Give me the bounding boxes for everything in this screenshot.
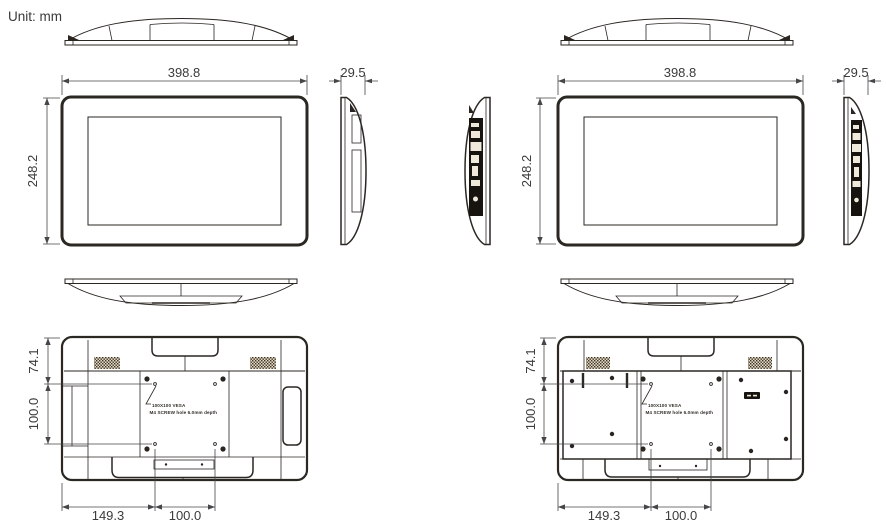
depth-value: 29.5 [843, 65, 868, 80]
width-value: 398.8 [664, 65, 697, 80]
vesa-left-offset-value: 149.3 [588, 508, 621, 523]
speaker-grille [748, 357, 772, 369]
stand-cutout [648, 338, 714, 356]
bottom-view [65, 279, 297, 306]
vesa-top-offset-value: 74.1 [26, 348, 41, 373]
io-side-view-left [465, 98, 490, 245]
width-value: 398.8 [168, 65, 201, 80]
speaker-grille [94, 357, 120, 369]
vesa-vertical-spacing-value: 100.0 [26, 398, 41, 431]
depth-dimension: 29.5 [329, 65, 378, 95]
bottom-recess [605, 459, 750, 477]
depth-dimension: 29.5 [832, 65, 881, 95]
rear-left-dimensions: 74.1 100.0 [26, 338, 152, 444]
vesa-left-offset-value: 149.3 [92, 508, 125, 523]
front-view [558, 97, 803, 245]
vesa-leader-line [146, 386, 156, 404]
variant-b: 398.8 248.2 [465, 19, 881, 524]
variant-a: 398.8 248.2 29.5 [25, 19, 378, 524]
vesa-note-line2: M4 SCREW hole 6.0mm depth [150, 410, 218, 415]
speaker-grille [250, 357, 276, 369]
vesa-leader-line [642, 386, 652, 404]
height-dimension: 248.2 [25, 98, 60, 244]
vesa-top-offset-value: 74.1 [523, 348, 538, 373]
dimension-drawing: Unit: mm 398.8 248.2 [0, 0, 886, 531]
depth-value: 29.5 [340, 65, 365, 80]
rear-connector-slot [744, 392, 760, 399]
top-view [65, 19, 297, 46]
side-recess [283, 387, 301, 445]
vesa-horizontal-spacing-value: 100.0 [169, 508, 202, 523]
front-view [62, 97, 307, 245]
vesa-vertical-spacing-value: 100.0 [523, 398, 538, 431]
top-view [561, 19, 793, 46]
vesa-note-line2: M4 SCREW hole 6.0mm depth [646, 410, 714, 415]
width-dimension: 398.8 [62, 65, 307, 95]
height-value: 248.2 [519, 155, 534, 188]
height-dimension: 248.2 [519, 98, 556, 244]
rear-bottom-dimensions: 149.3 100.0 [558, 449, 711, 523]
rear-left-dimensions: 74.1 100.0 [523, 338, 648, 444]
side-view [341, 98, 366, 245]
height-value: 248.2 [25, 155, 40, 188]
speaker-grille [586, 357, 610, 369]
screen-area [584, 117, 777, 225]
bottom-view [561, 279, 793, 306]
rear-view: 100X100 VESA M4 SCREW hole 6.0mm depth [558, 337, 803, 480]
screen-area [88, 117, 281, 225]
rear-view: 100X100 VESA M4 SCREW hole 6.0mm depth [62, 337, 307, 480]
width-dimension: 398.8 [558, 65, 803, 95]
vesa-note-line1: 100X100 VESA [648, 403, 682, 408]
stand-cutout [152, 338, 218, 356]
unit-label: Unit: mm [8, 9, 62, 24]
vesa-horizontal-spacing-value: 100.0 [665, 508, 698, 523]
io-side-view-right [844, 98, 869, 245]
vesa-note-line1: 100X100 VESA [152, 403, 186, 408]
